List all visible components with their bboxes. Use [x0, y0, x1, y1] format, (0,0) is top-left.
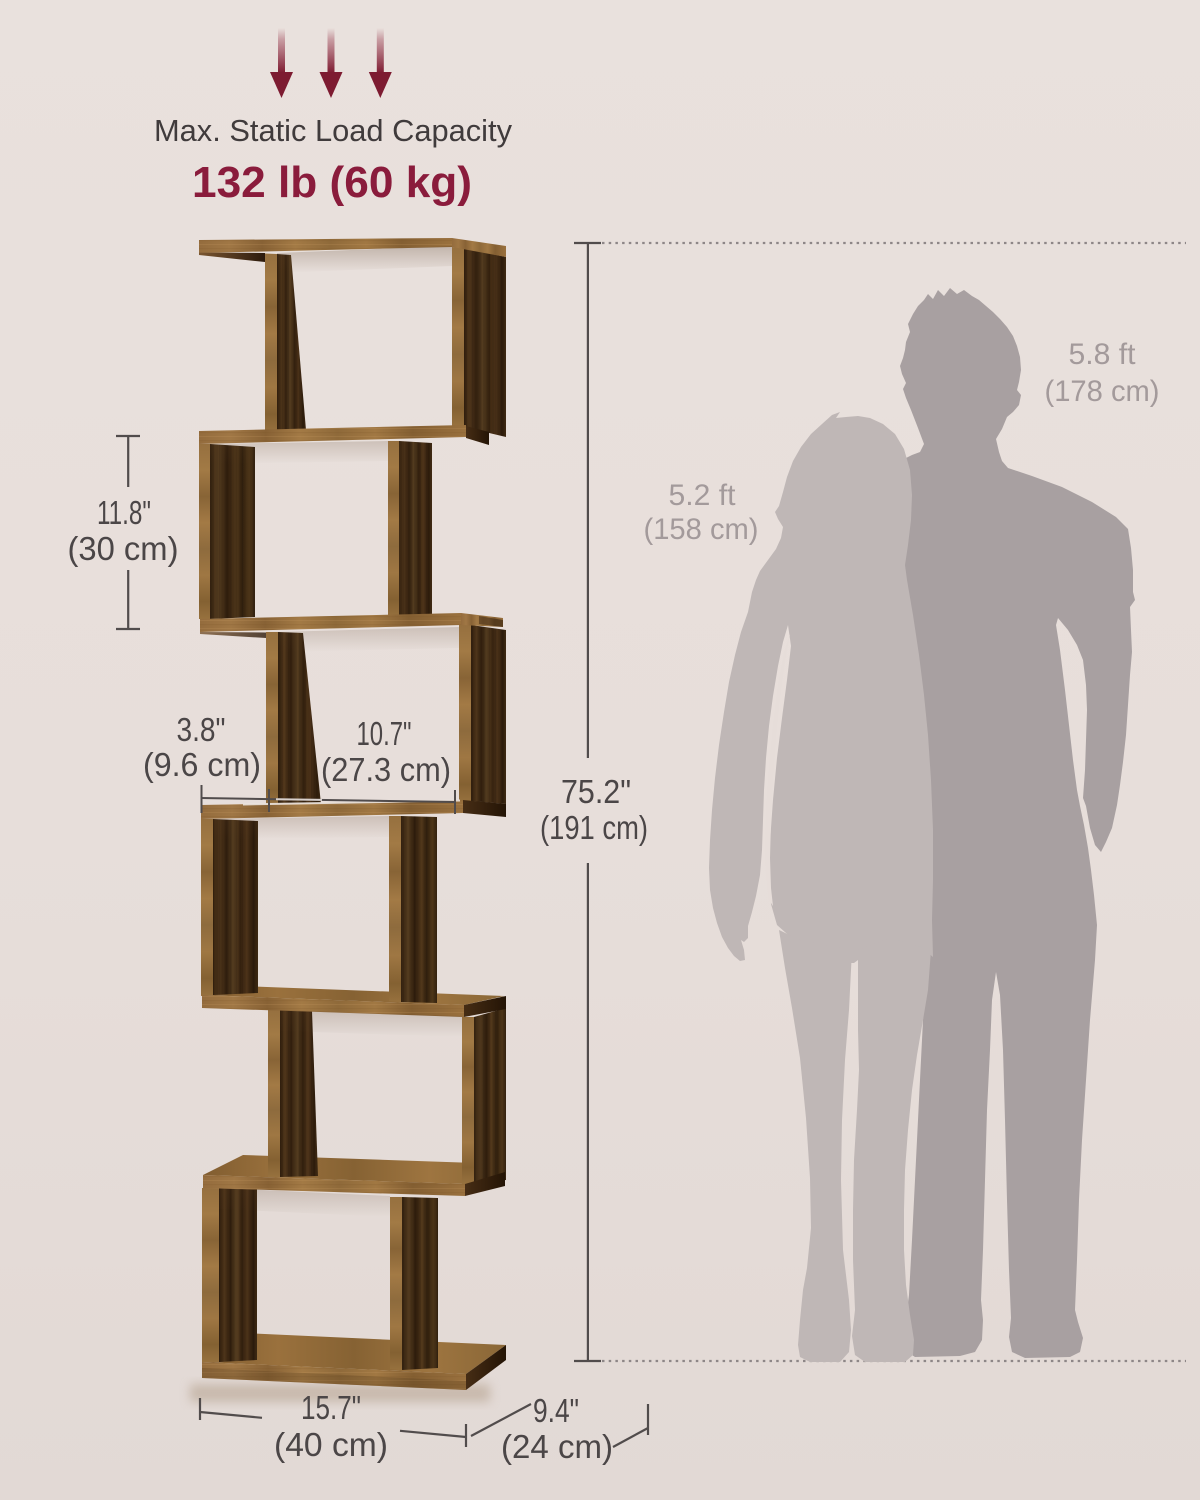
svg-text:(24 cm): (24 cm) — [501, 1428, 613, 1465]
svg-text:132 lb (60 kg): 132 lb (60 kg) — [192, 158, 472, 207]
svg-text:15.7": 15.7" — [301, 1389, 361, 1426]
svg-text:5.8 ft: 5.8 ft — [1069, 338, 1137, 371]
svg-text:(30 cm): (30 cm) — [68, 530, 179, 567]
svg-text:(158 cm): (158 cm) — [644, 513, 759, 546]
svg-text:10.7": 10.7" — [357, 715, 412, 752]
svg-text:(27.3 cm): (27.3 cm) — [321, 751, 451, 788]
svg-text:(9.6 cm): (9.6 cm) — [143, 746, 261, 783]
svg-text:(191 cm): (191 cm) — [540, 809, 648, 846]
svg-text:75.2": 75.2" — [561, 773, 631, 810]
svg-text:(178 cm): (178 cm) — [1045, 375, 1160, 408]
svg-text:9.4": 9.4" — [533, 1392, 579, 1429]
svg-text:(40 cm): (40 cm) — [274, 1426, 388, 1463]
svg-text:3.8": 3.8" — [177, 711, 226, 748]
svg-text:5.2 ft: 5.2 ft — [669, 479, 737, 512]
svg-text:11.8": 11.8" — [97, 494, 151, 531]
svg-text:Max. Static Load Capacity: Max. Static Load Capacity — [154, 113, 512, 148]
